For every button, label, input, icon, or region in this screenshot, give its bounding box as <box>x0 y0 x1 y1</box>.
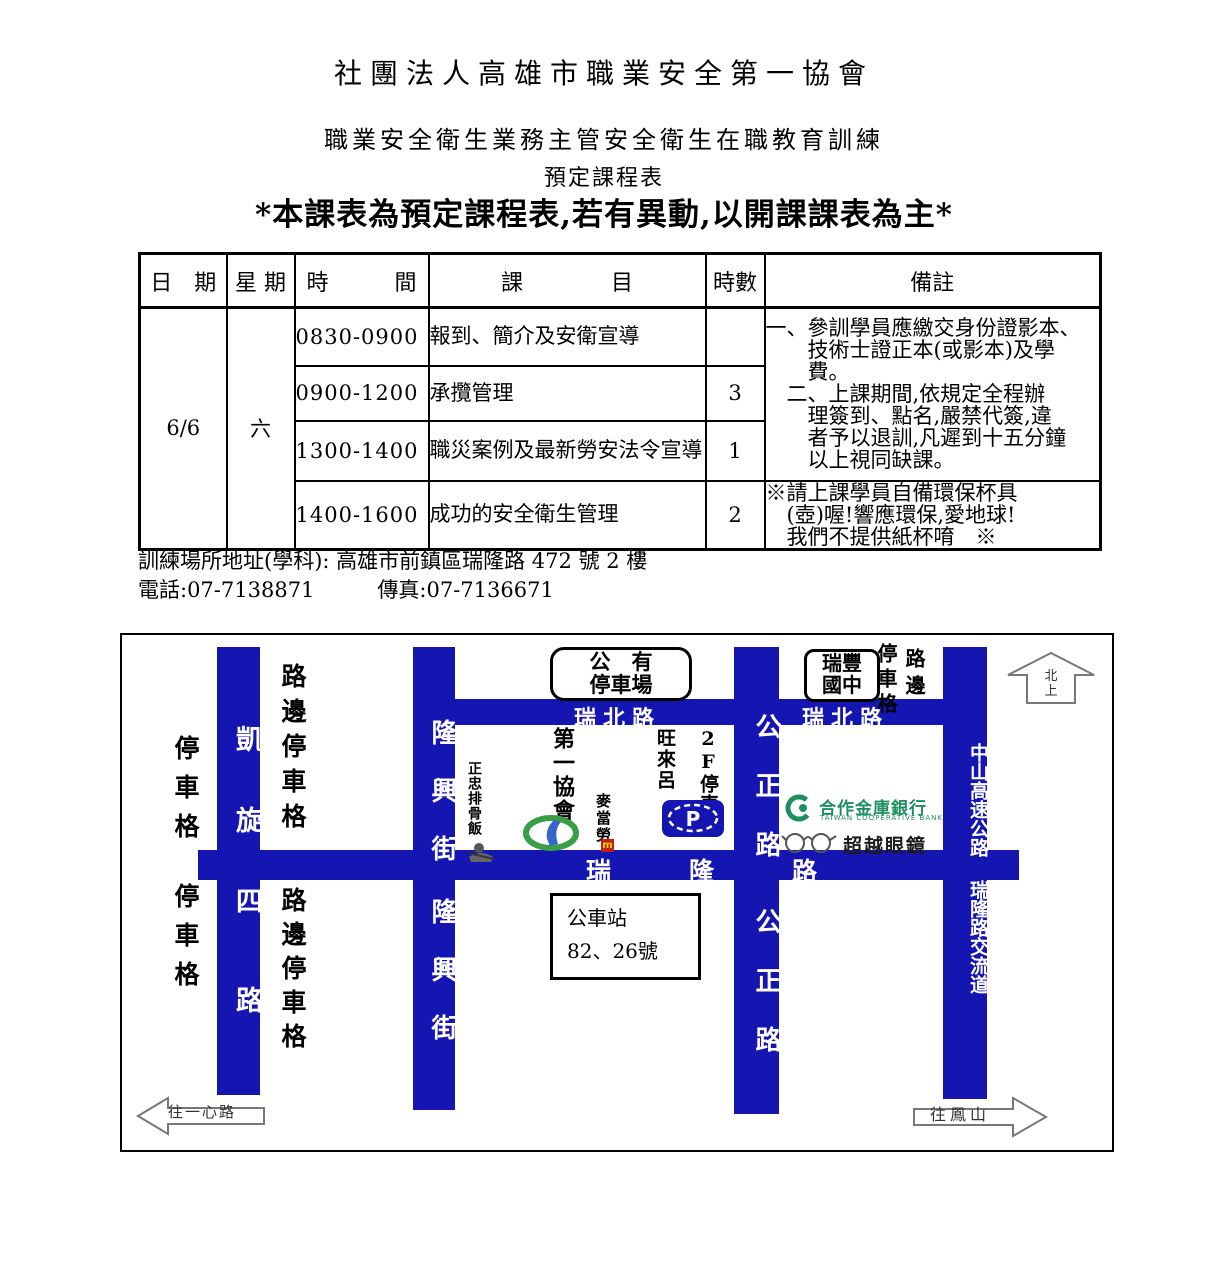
public-parking-box: 公 有 停車場 <box>550 647 692 701</box>
cell-time: 1300-1400 <box>295 421 429 481</box>
table-row: 6/6 六 0830-0900 報到、簡介及安衛宣導 一、參訓學員應繳交身份證影… <box>140 308 1101 366</box>
location-map: 凱旋 四路 隆興街 隆興街 公正路 公正路 中山高速公路 瑞隆路交流道 瑞北路 … <box>120 633 1114 1152</box>
bus-stop-box: 公車站 82、26號 <box>550 893 701 980</box>
coop-bank-logo-icon <box>785 792 815 824</box>
mcdonalds-m-icon: m <box>601 839 614 852</box>
parking-p-sign: P <box>662 800 724 837</box>
cell-hours: 3 <box>706 366 765 421</box>
page-title: 社團法人高雄市職業安全第一協會 <box>0 52 1208 92</box>
road-label-kaixuan-upper: 凱旋 <box>217 725 260 887</box>
zhengzhong-icon <box>466 841 496 863</box>
road-label-interchange: 瑞隆路交流道 <box>943 880 987 994</box>
svg-text:P: P <box>686 807 701 831</box>
document-page: 社團法人高雄市職業安全第一協會 職業安全衛生業務主管安全衛生在職教育訓練 預定課… <box>0 0 1208 1287</box>
header-time: 時 間 <box>295 254 429 308</box>
header-date: 日 期 <box>140 254 227 308</box>
header-hours: 時數 <box>706 254 765 308</box>
road-label-longxing-upper: 隆興街 <box>413 719 455 893</box>
glasses-shop-label: 超越眼鏡 <box>843 831 927 858</box>
label-parking-spaces-upper: 停車格 <box>173 735 198 852</box>
cell-remarks-eco: ※請上課學員自備環保杯具 (壺)喔!響應環保,愛地球! 我們不提供紙杯唷 ※ <box>765 481 1101 550</box>
glasses-icon <box>781 828 839 856</box>
course-title: 職業安全衛生業務主管安全衛生在職教育訓練 <box>0 120 1208 155</box>
cell-weekday: 六 <box>227 308 295 550</box>
training-address: 訓練場所地址(學科): 高雄市前鎮區瑞隆路 472 號 2 樓 <box>138 545 647 575</box>
cell-hours <box>706 308 765 366</box>
cell-time: 0830-0900 <box>295 308 429 366</box>
schedule-notice: *本課表為預定課程表,若有異動,以開課課表為主* <box>0 189 1208 234</box>
wanglai-label: 旺來呂 <box>655 728 674 791</box>
road-label-ruibei-west: 瑞北路 <box>574 701 661 733</box>
p-sign-icon: P <box>662 800 724 837</box>
header-remarks: 備註 <box>765 254 1101 308</box>
road-label-kaixuan-lower: 四路 <box>217 887 260 1085</box>
label-parking-spaces-lower: 停車格 <box>173 883 198 1000</box>
road-label-gongzheng-lower: 公正路 <box>734 908 779 1085</box>
to-fengshan-label: 往鳳山 <box>930 1101 990 1125</box>
cell-subject: 成功的安全衛生管理 <box>429 481 706 550</box>
cell-time: 0900-1200 <box>295 366 429 421</box>
cell-time: 1400-1600 <box>295 481 429 550</box>
road-label-highway: 中山高速公路 <box>943 743 987 857</box>
phone-fax-line: 電話:07-7138871 傳真:07-7136671 <box>138 574 554 604</box>
cell-date: 6/6 <box>140 308 227 550</box>
ruifeng-school-box: 瑞豐 國中 <box>804 649 880 702</box>
cell-hours: 2 <box>706 481 765 550</box>
to-yixin-road-label: 往一心路 <box>168 1101 236 1122</box>
road-label-longxing-lower: 隆興街 <box>413 898 455 1072</box>
cell-subject: 報到、簡介及安衛宣導 <box>429 308 706 366</box>
association-label: 第一協會 <box>551 727 573 823</box>
label-curbside-parking-lower: 路邊停車格 <box>280 887 305 1057</box>
header-weekday: 星 期 <box>227 254 295 308</box>
table-header-row: 日 期 星 期 時 間 課 目 時數 備註 <box>140 254 1101 308</box>
association-logo-icon <box>523 815 580 851</box>
mcdonalds-label: 麥當勞 <box>595 793 610 844</box>
zhengzhong-restaurant-label: 正忠排骨飯 <box>467 761 481 836</box>
cell-subject: 職災案例及最新勞安法令宣導 <box>429 421 706 481</box>
cell-subject: 承攬管理 <box>429 366 706 421</box>
coop-bank-subtitle: TAIWAN COOPERATIVE BANK <box>820 814 943 822</box>
header-subject: 課 目 <box>429 254 706 308</box>
cell-remarks-main: 一、參訓學員應繳交身份證影本、 技術士證正本(或影本)及學 費。 二、上課期間,… <box>765 308 1101 481</box>
schedule-subtitle: 預定課程表 <box>0 160 1208 192</box>
north-arrow-label: 北上 <box>1043 669 1059 699</box>
label-curbside-parking-upper: 路邊停車格 <box>280 663 305 838</box>
course-schedule-table: 日 期 星 期 時 間 課 目 時數 備註 6/6 六 0830-0900 報到… <box>138 252 1102 551</box>
cell-hours: 1 <box>706 421 765 481</box>
label-roadside-school: 路邊 <box>904 648 924 702</box>
